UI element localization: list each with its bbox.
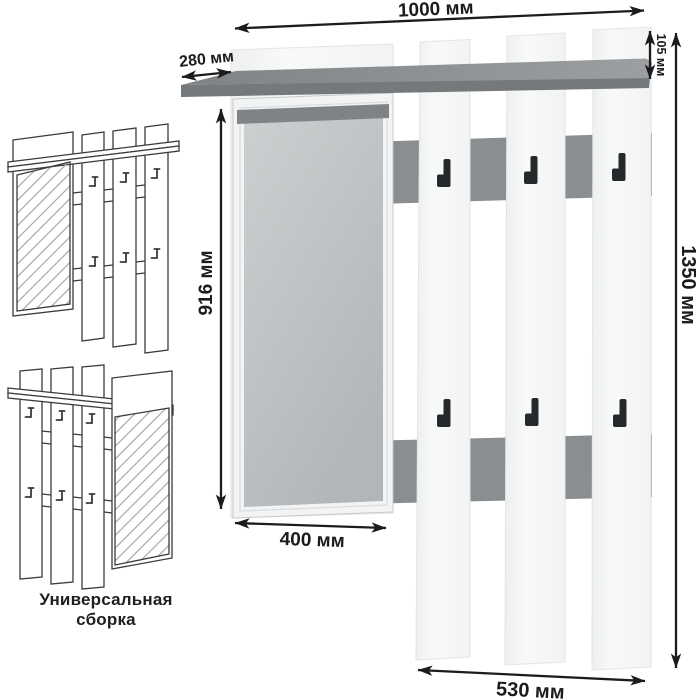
- sketch1-slat: [113, 128, 136, 347]
- assembly-sketch-mirror-right: [8, 365, 173, 589]
- dimension-shelf-depth: 280 мм: [178, 48, 234, 77]
- dimension-shelf-height: 105 мм: [650, 31, 668, 79]
- dimension-shelf-depth-label: 280 мм: [178, 48, 234, 71]
- sketch1-mirror-glass: [17, 162, 70, 311]
- slat-3: [592, 27, 651, 670]
- product-dimension-diagram: { "product": { "type_hint": "wall coat r…: [0, 0, 700, 700]
- sketch1-slat: [145, 124, 168, 353]
- sketch1-slat: [82, 132, 104, 341]
- assembly-caption: Универсальная сборка: [14, 590, 198, 630]
- dimension-total-height: 1350 мм: [676, 33, 699, 668]
- dimension-mirror-height: 916 мм: [196, 109, 221, 509]
- slat-1: [416, 40, 470, 661]
- dimension-mirror-width-label: 400 мм: [279, 529, 345, 552]
- dimension-bottom-width: 530 мм: [418, 670, 645, 700]
- dimension-shelf-height-label: 105 мм: [654, 34, 668, 77]
- dimension-total-height-label: 1350 мм: [677, 245, 699, 325]
- dimension-mirror-width: 400 мм: [235, 523, 386, 552]
- dimension-mirror-height-label: 916 мм: [196, 250, 217, 315]
- mirror-glass: [244, 108, 383, 507]
- sketch2-mirror-glass: [115, 408, 169, 565]
- slat-2: [505, 33, 565, 665]
- dimension-top-width-label: 1000 мм: [398, 0, 474, 22]
- dimension-bottom-width-label: 530 мм: [496, 678, 566, 700]
- assembly-sketch-mirror-left: [8, 124, 179, 353]
- dimension-top-width: 1000 мм: [235, 0, 644, 28]
- mirror: [233, 93, 393, 518]
